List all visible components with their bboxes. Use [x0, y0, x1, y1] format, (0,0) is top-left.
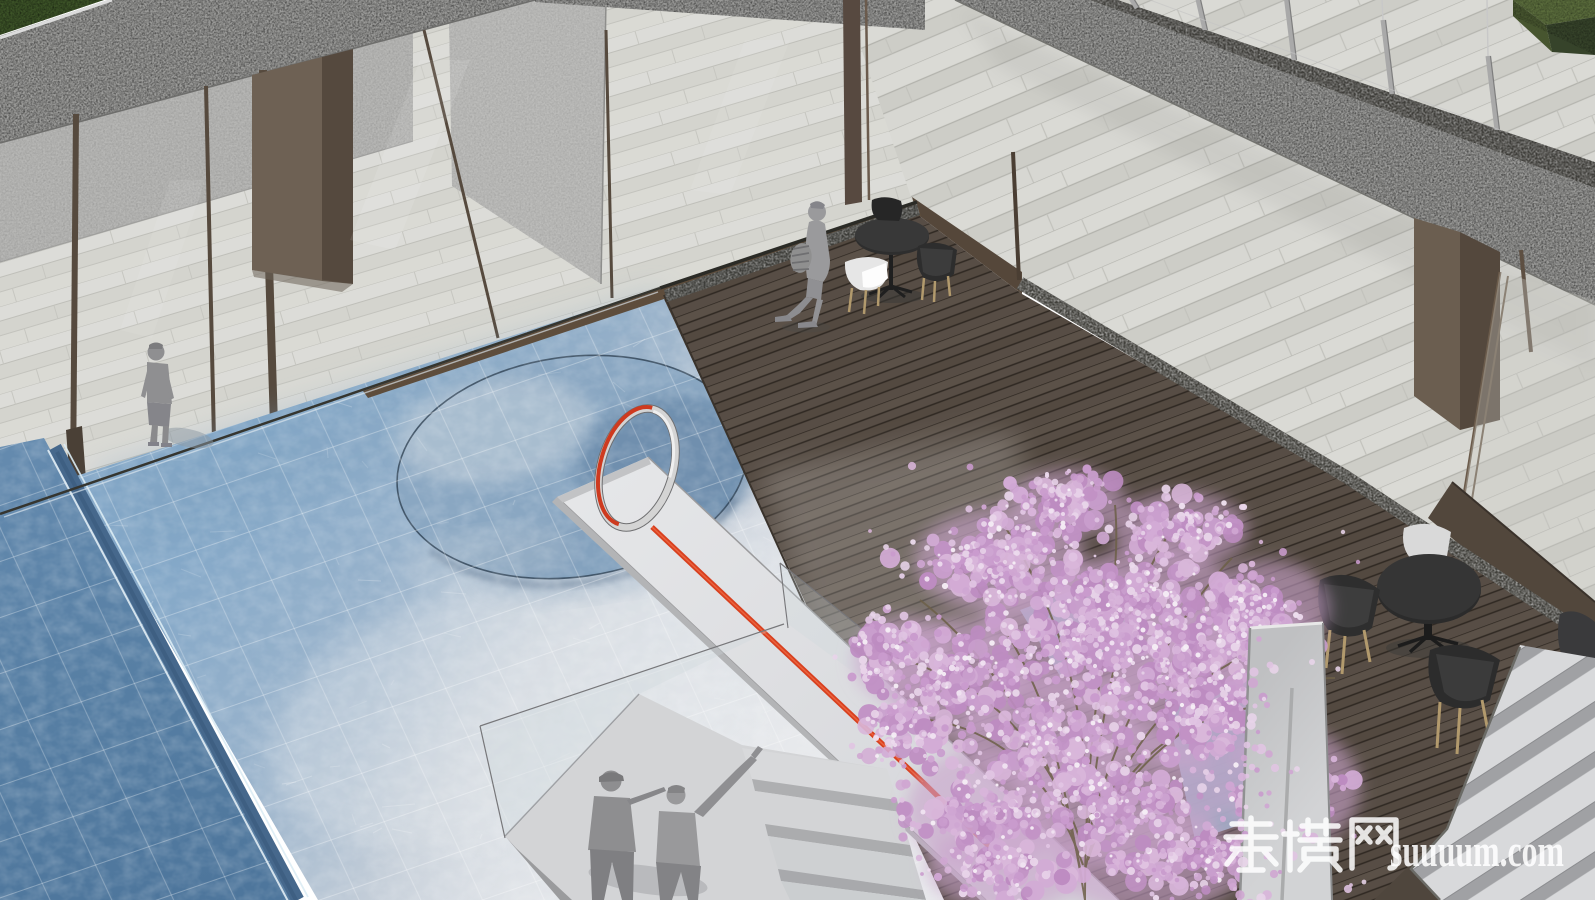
- svg-text:suuuum.com: suuuum.com: [1390, 825, 1564, 876]
